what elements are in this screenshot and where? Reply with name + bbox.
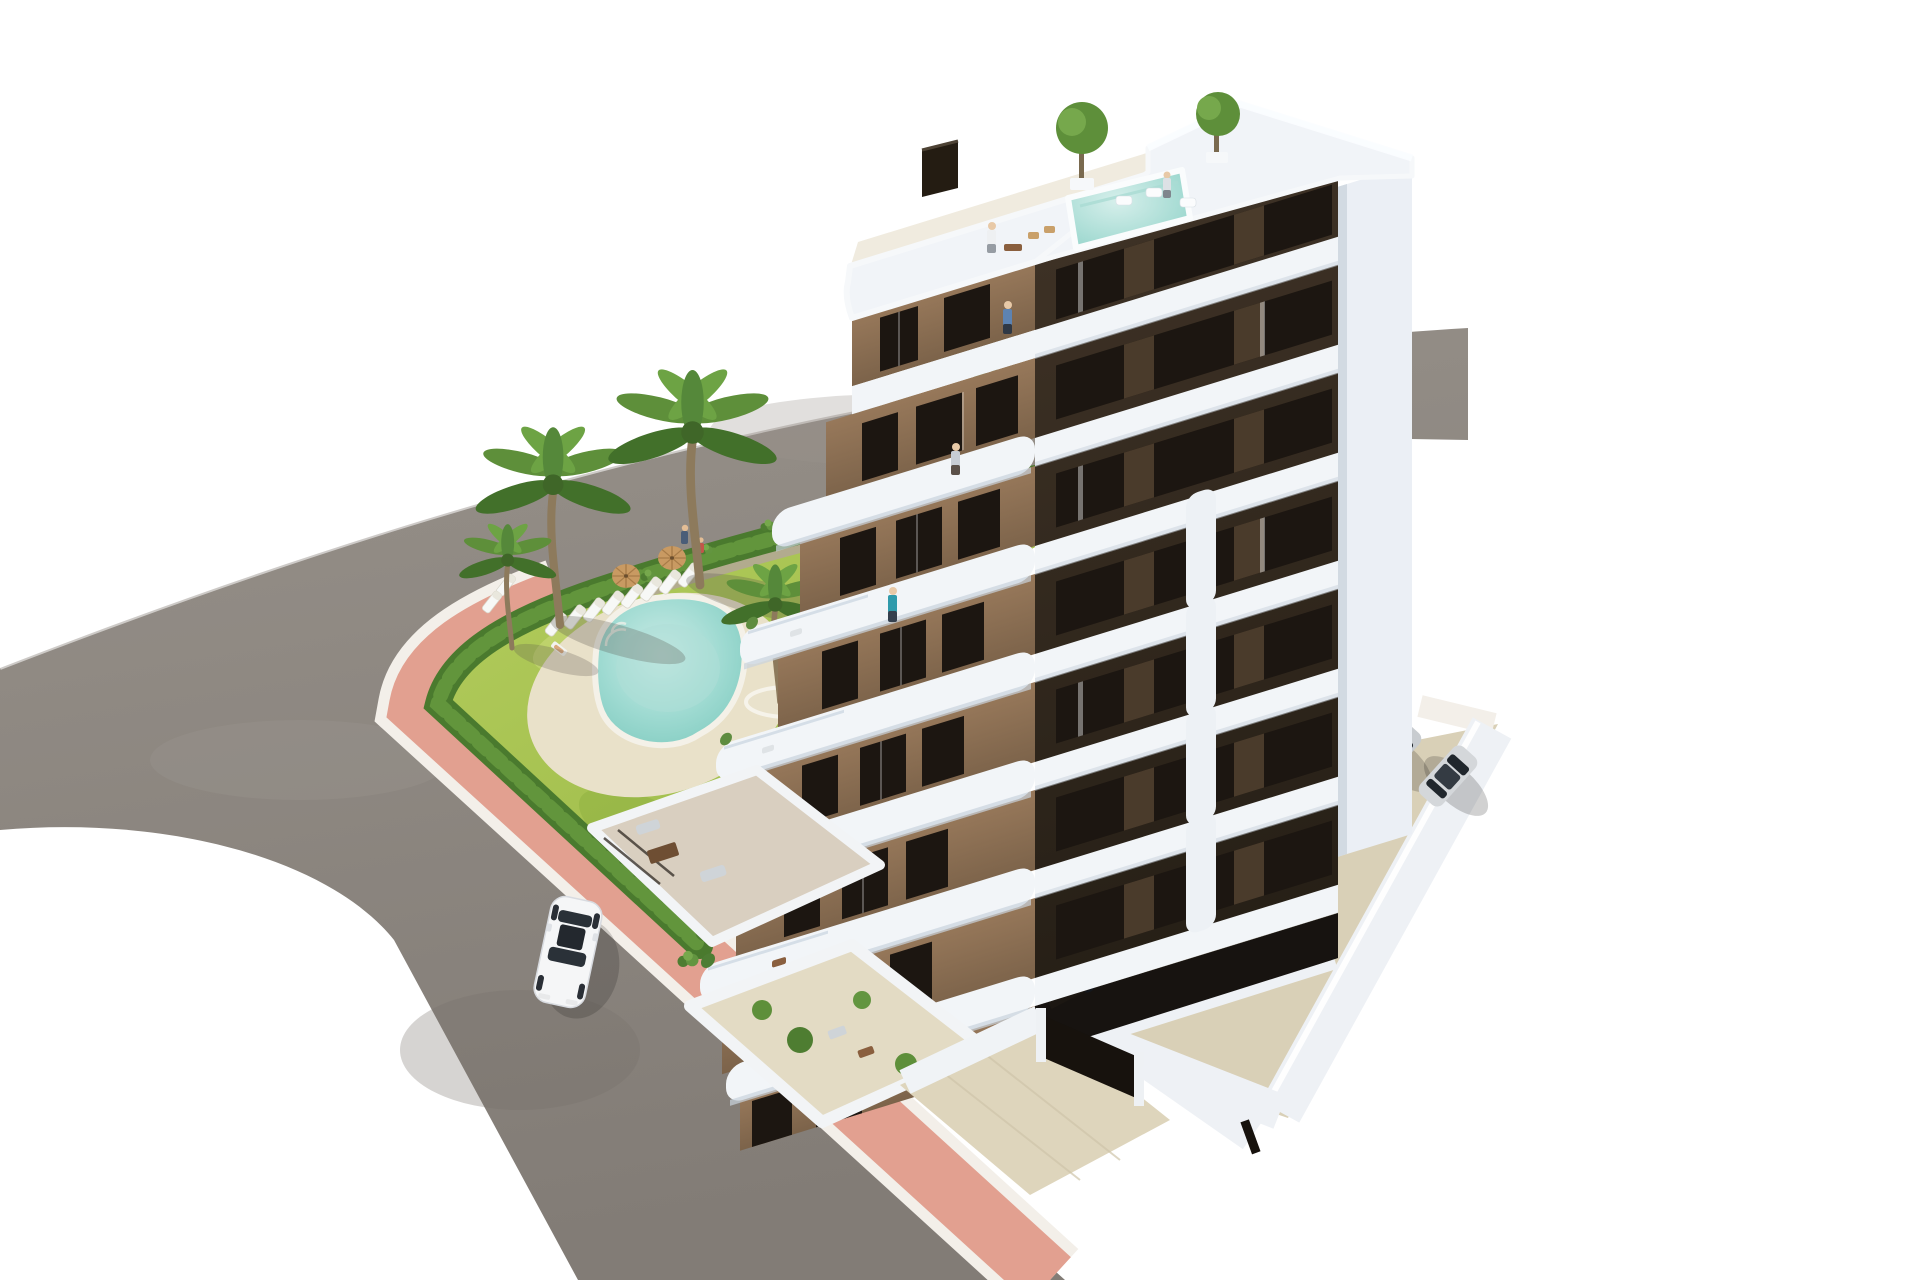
stair-core [1338, 164, 1412, 857]
render-image: New-build apartment complex - aerial 3D … [0, 0, 1920, 1280]
aerial-render: New-build apartment complex - aerial 3D … [0, 0, 1920, 1280]
balcony-fins [1186, 486, 1216, 935]
facade-right-dark [1035, 169, 1338, 1006]
